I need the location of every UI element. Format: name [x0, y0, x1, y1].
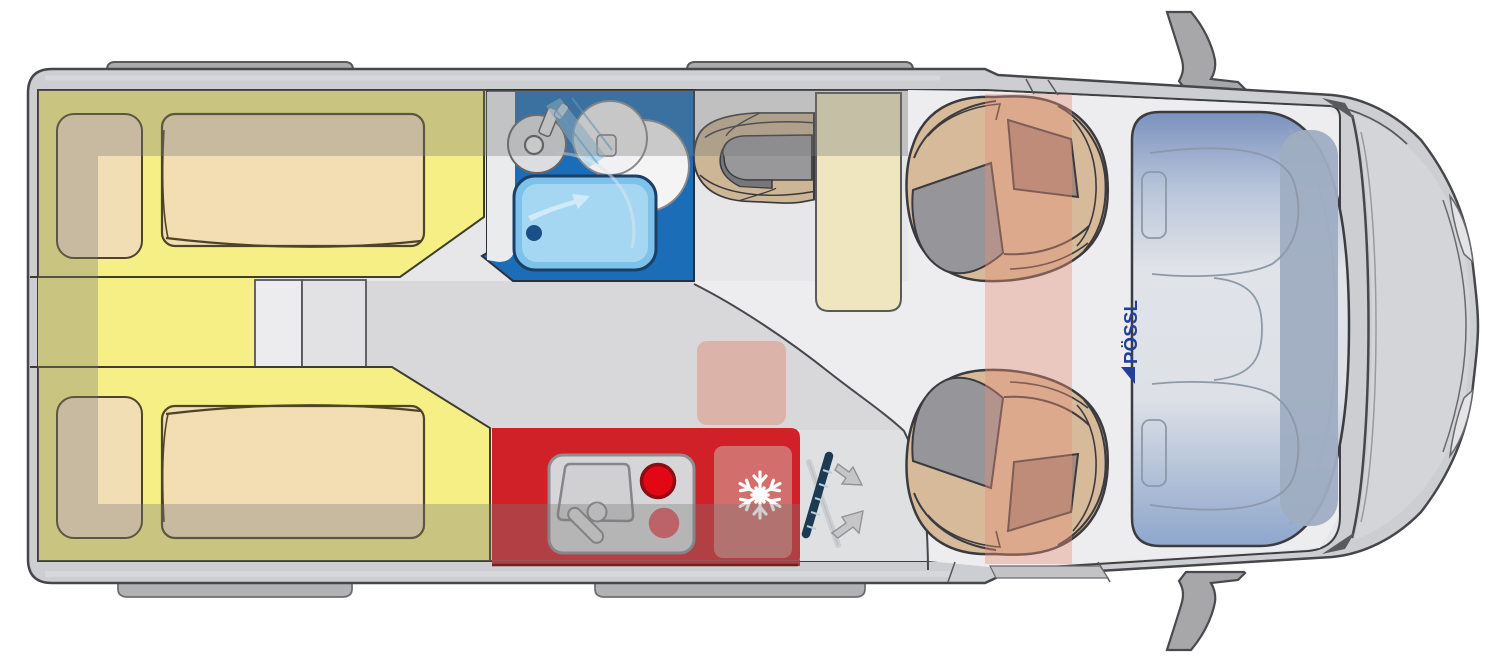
svg-text:PÖSSL: PÖSSL — [1120, 300, 1141, 364]
